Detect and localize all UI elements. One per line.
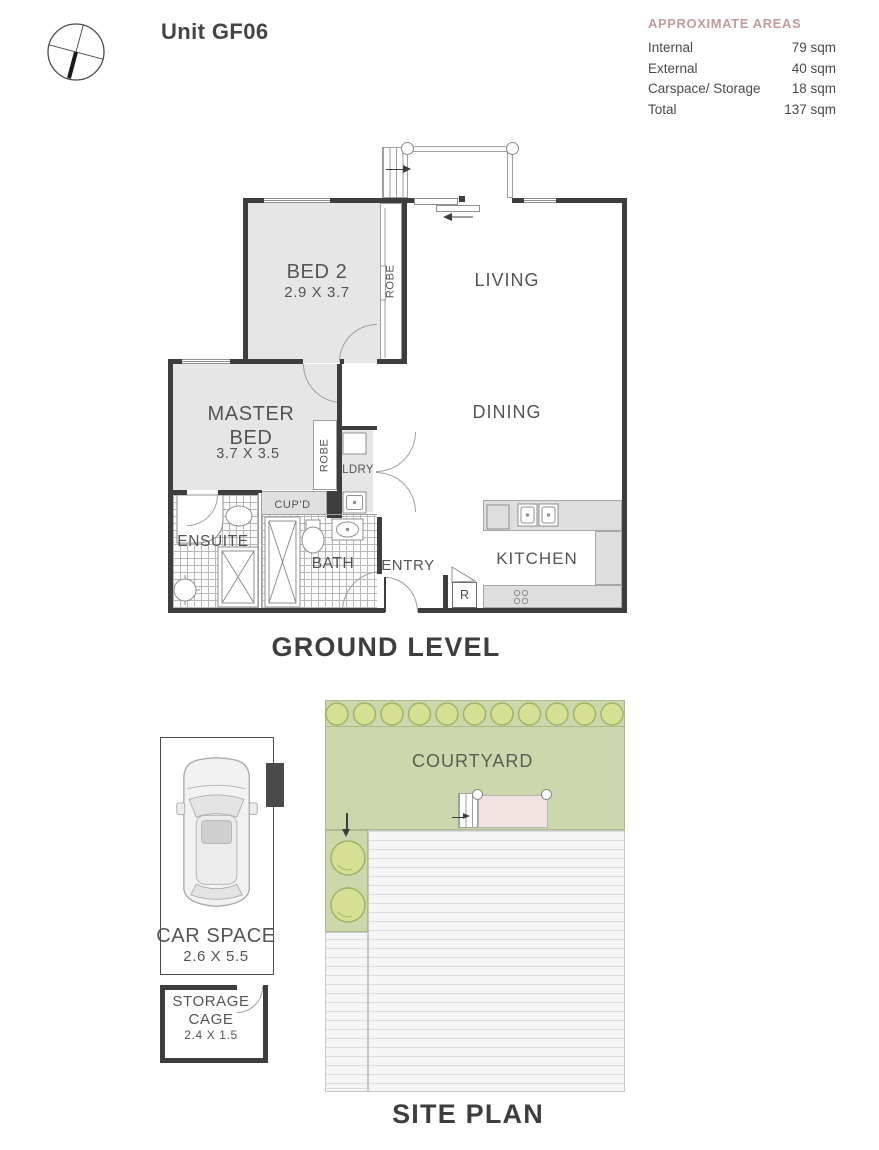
area-label: External xyxy=(648,59,698,80)
label-master-dims: 3.7 X 3.5 xyxy=(188,446,308,463)
slider-arrow xyxy=(443,213,473,221)
area-label: Carspace/ Storage xyxy=(648,79,761,100)
path-arrow-head xyxy=(342,829,350,837)
appliance xyxy=(343,433,366,454)
sliding-door-panel xyxy=(414,198,458,205)
wall-segment xyxy=(512,198,524,203)
site-plan: CAR SPACE 2.6 X 5.5 STORAGE CAGE 2.4 X 1… xyxy=(150,695,635,1100)
area-row: Total 137 sqm xyxy=(648,100,836,121)
label-bed2: BED 2 xyxy=(257,261,377,284)
label-storage-dims: 2.4 X 1.5 xyxy=(169,1029,253,1043)
label-car-space: CAR SPACE xyxy=(156,925,276,948)
wall-segment xyxy=(218,490,262,495)
cooktop xyxy=(514,590,527,603)
fridge: R xyxy=(452,582,477,608)
storage-wall xyxy=(160,985,165,1063)
wall-segment xyxy=(173,490,187,495)
entry-door-leaf xyxy=(384,577,386,612)
wall-segment xyxy=(402,198,407,364)
sliding-door-handle xyxy=(459,196,465,202)
fridge-door-swing xyxy=(452,567,475,582)
label-robe-master: ROBE xyxy=(319,433,332,477)
building-roof xyxy=(325,932,368,1092)
area-value: 137 sqm xyxy=(784,100,836,121)
hedge-baseline xyxy=(325,726,625,727)
site-deck-post xyxy=(541,789,552,800)
wall-segment xyxy=(230,359,303,364)
label-storage-cage: STORAGE CAGE xyxy=(169,993,253,1028)
storage-wall xyxy=(160,1058,268,1063)
label-master-bed: MASTER BED xyxy=(195,402,307,450)
sliding-door-panel xyxy=(436,205,480,212)
fridge-label: R xyxy=(460,588,469,602)
label-robe-bed2: ROBE xyxy=(385,259,398,303)
area-label: Internal xyxy=(648,38,693,59)
area-row: Carspace/ Storage 18 sqm xyxy=(648,79,836,100)
wall-segment xyxy=(418,608,627,613)
area-value: 40 sqm xyxy=(792,59,836,80)
wall-segment xyxy=(168,608,385,613)
wall-segment xyxy=(168,363,173,613)
ground-level-title: GROUND LEVEL xyxy=(136,632,636,663)
label-kitchen: KITCHEN xyxy=(477,549,597,569)
label-ensuite: ENSUITE xyxy=(168,533,258,551)
area-value: 18 sqm xyxy=(792,79,836,100)
label-living: LIVING xyxy=(447,270,567,291)
areas-panel: APPROXIMATE AREAS Internal 79 sqm Extern… xyxy=(648,16,836,120)
area-row: Internal 79 sqm xyxy=(648,38,836,59)
window xyxy=(264,198,330,203)
window xyxy=(524,198,556,203)
page-title: Unit GF06 xyxy=(161,19,269,45)
ground-plan: R BED 2 2.9 X 3.7 ROBE LIVING MASTER BED… xyxy=(160,138,640,628)
partition-line xyxy=(262,514,377,515)
label-laundry: LDRY xyxy=(340,464,376,477)
area-label: Total xyxy=(648,100,677,121)
car-icon xyxy=(175,748,259,918)
wall-segment xyxy=(243,198,248,363)
bench-square xyxy=(487,505,509,529)
path-arrow xyxy=(346,813,348,829)
basin xyxy=(226,506,252,526)
toilet xyxy=(174,579,196,601)
area-value: 79 sqm xyxy=(792,38,836,59)
label-cupboard: CUP'D xyxy=(258,499,327,512)
site-plan-title: SITE PLAN xyxy=(218,1099,718,1130)
toilet xyxy=(302,527,324,553)
site-deck xyxy=(478,795,548,828)
label-bed2-dims: 2.9 X 3.7 xyxy=(257,284,377,301)
wall-segment xyxy=(443,575,448,613)
column xyxy=(266,763,284,807)
label-entry: ENTRY xyxy=(368,557,448,574)
areas-heading: APPROXIMATE AREAS xyxy=(648,16,836,31)
garden-trees xyxy=(326,835,370,927)
label-courtyard: COURTYARD xyxy=(412,751,532,772)
label-car-space-dims: 2.6 X 5.5 xyxy=(156,948,276,965)
label-dining: DINING xyxy=(447,402,567,423)
wall-segment xyxy=(622,198,627,613)
area-row: External 40 sqm xyxy=(648,59,836,80)
label-bath: BATH xyxy=(293,555,373,573)
floorplan-page: Unit GF06 APPROXIMATE AREAS Internal 79 … xyxy=(0,0,879,1150)
storage-wall xyxy=(160,985,237,990)
storage-wall xyxy=(263,985,268,1063)
site-deck-post xyxy=(472,789,483,800)
wall-segment xyxy=(342,426,377,430)
site-stair-arrow-head xyxy=(463,813,470,819)
window xyxy=(182,359,230,364)
wall-segment xyxy=(168,359,182,364)
building-roof xyxy=(368,830,625,1092)
wall-segment xyxy=(556,198,627,203)
compass-icon xyxy=(45,21,107,83)
ensuite-fixtures xyxy=(170,495,258,607)
